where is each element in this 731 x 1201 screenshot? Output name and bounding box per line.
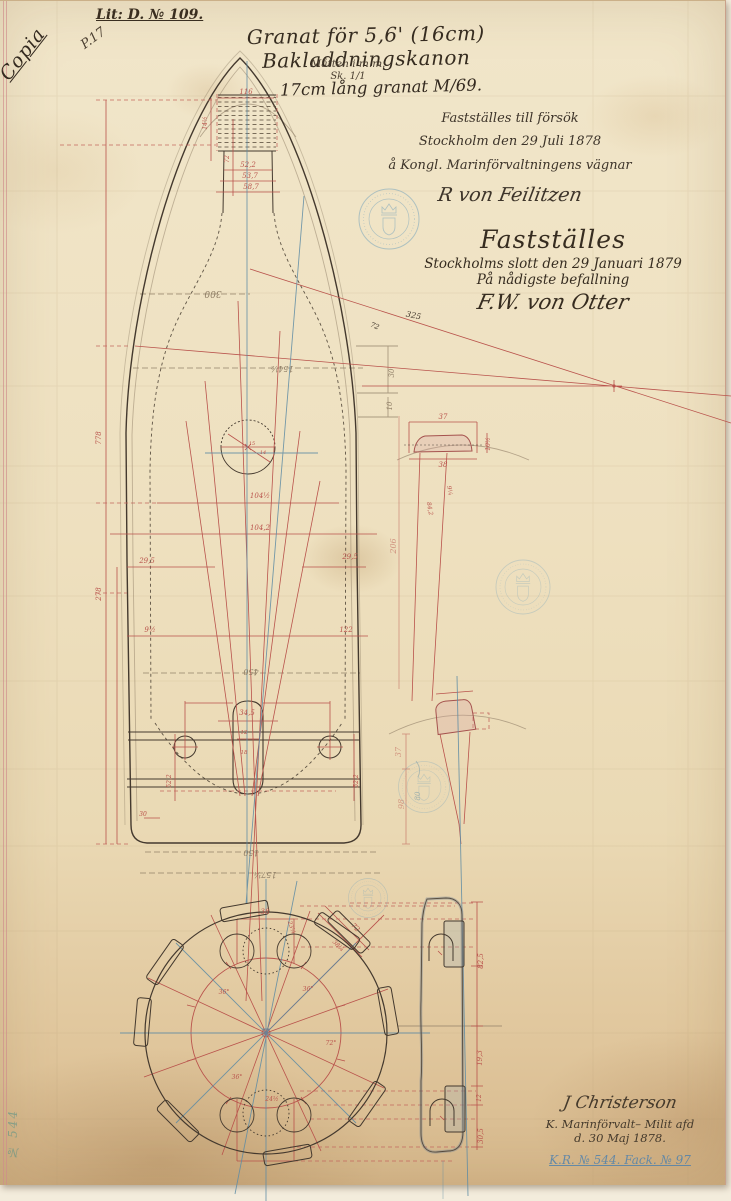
dim-label: 80 — [414, 791, 422, 800]
final-approval-line3: På nådigste befallning — [386, 272, 720, 288]
margin-archive-mark: № 544 — [6, 1109, 20, 1160]
dim-label: 72 — [369, 321, 381, 332]
dim-label: 30,5 — [477, 1128, 485, 1144]
trial-approval-signature: R von Feilitzen — [359, 178, 661, 212]
dim-label: 157¼ — [253, 870, 276, 879]
dim-label: 37 — [439, 413, 448, 421]
dim-label: 778 — [95, 431, 103, 445]
dim-label: 104,2 — [250, 524, 271, 532]
dim-label: 53,7 — [242, 172, 258, 180]
dim-label: 154½ — [270, 364, 293, 373]
trial-approval-line3: å Kongl. Marinförvaltningens vägnar — [362, 154, 658, 177]
drafter-signature: J Christerson — [514, 1093, 726, 1113]
dim-label: 36° — [303, 986, 314, 993]
dim-label: 14 — [260, 450, 266, 456]
final-approval-line1: Fastställes — [386, 225, 720, 254]
trial-approval-block: Fastställes till försök Stockholm den 29… — [362, 107, 658, 212]
drafter-office: K. Marinförvalt– Milit afd — [516, 1117, 724, 1131]
dim-label: 37 — [394, 746, 403, 757]
drawing-sheet: 11614½7252,253,758,730032572154½30107782… — [0, 0, 726, 1185]
dim-label: 30 — [388, 368, 396, 377]
dim-label: 18 — [241, 750, 248, 756]
dim-label: 24½ — [264, 1096, 279, 1103]
dim-label: 84,2 — [425, 502, 434, 517]
dim-label: 12 — [476, 1094, 483, 1102]
dim-label: 150 — [243, 848, 258, 857]
margin-rule — [4, 1, 7, 1185]
dim-label: 52,2 — [240, 161, 256, 169]
dim-label: 9½ — [144, 626, 155, 634]
trial-approval-line2: Stockholm den 29 Juli 1878 — [362, 130, 658, 153]
archive-reference: K.R. № 544. Fack. № 97 — [516, 1153, 724, 1167]
dim-label: 116 — [239, 88, 253, 96]
final-approval-signature: F.W. von Otter — [383, 290, 722, 314]
dim-label: 98 — [397, 799, 406, 809]
slab-side-view — [421, 898, 465, 1152]
dim-label: 36° — [219, 989, 230, 996]
dim-label: 104½ — [250, 492, 270, 500]
dim-label: 30 — [139, 811, 147, 818]
stud-detail-upper — [404, 435, 482, 452]
dim-label: 72 — [224, 155, 231, 163]
dim-label: 58,7 — [243, 183, 259, 191]
drafter-block: J Christerson K. Marinförvalt– Milit afd… — [516, 1093, 724, 1167]
final-approval-block: Fastställes Stockholms slott den 29 Janu… — [386, 225, 720, 314]
trial-approval-line1: Fastställes till försök — [362, 107, 658, 130]
dim-label: 38 — [261, 908, 270, 916]
dim-label: 38¼ — [331, 939, 346, 954]
dim-label: 9¼ — [445, 485, 454, 496]
units-note: Måtten i m.m. — [300, 58, 396, 70]
dim-label: 10½ — [485, 437, 492, 451]
dim-label: 72° — [326, 1040, 337, 1047]
dim-label: 14½ — [202, 116, 209, 130]
dim-label: 23¼ — [285, 919, 297, 935]
dim-label: 36° — [232, 1074, 243, 1081]
dim-label: 34,5 — [239, 709, 255, 717]
lit-reference: Lit: D. № 109. — [96, 7, 203, 23]
dim-label: 38 — [439, 461, 448, 469]
drafter-date: d. 30 Maj 1878. — [516, 1131, 724, 1145]
dim-label: 15 — [249, 441, 255, 447]
dim-label: 12 — [241, 730, 248, 736]
dim-label: 122 — [339, 626, 353, 634]
dim-label: 29,5 — [341, 553, 358, 561]
dim-label: 278 — [95, 587, 103, 602]
dim-label: 206 — [389, 538, 398, 554]
dim-label: 10 — [386, 401, 394, 410]
dim-label: 52,2 — [353, 774, 360, 788]
dim-label: 300 — [204, 288, 221, 298]
stamp-faint-middle — [496, 560, 550, 614]
dim-label: 82,5 — [477, 953, 485, 969]
final-approval-line2: Stockholms slott den 29 Januari 1879 — [386, 256, 720, 272]
dim-label: 52,2 — [166, 774, 173, 788]
dim-label: 450 — [243, 667, 259, 676]
stamp-faint-planview — [349, 879, 388, 918]
dim-label: 19,3 — [476, 1050, 484, 1066]
stud-detail-lower — [434, 698, 476, 735]
dim-label: 29,5 — [138, 557, 155, 565]
